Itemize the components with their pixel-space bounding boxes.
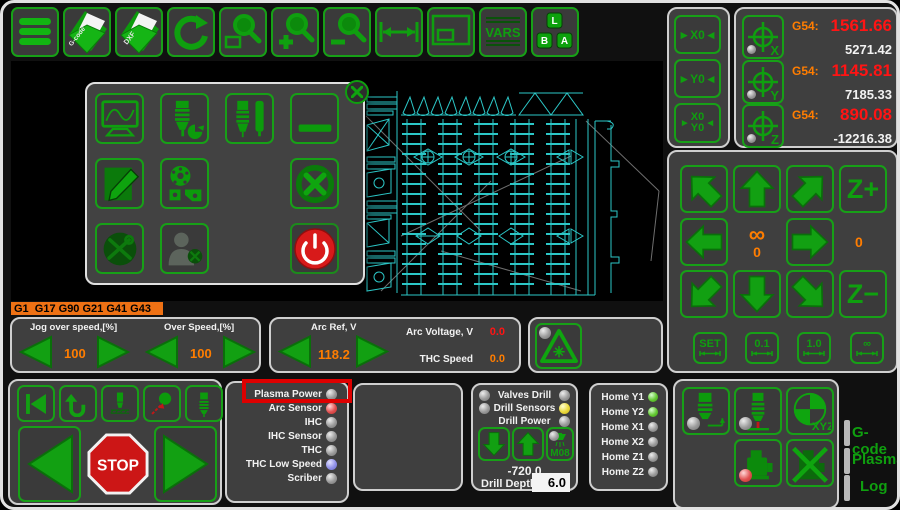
home-label: Home Z1 bbox=[602, 452, 644, 463]
tool-diagnostics-button[interactable] bbox=[160, 93, 209, 144]
x-machine-value: 5271.42 bbox=[845, 42, 892, 57]
axis-x-led bbox=[747, 45, 756, 54]
monitor-graph-icon bbox=[100, 98, 140, 140]
z-plus-label: Z+ bbox=[847, 174, 879, 205]
close-icon bbox=[351, 86, 363, 98]
thc-led bbox=[326, 445, 337, 456]
home-x1-led bbox=[648, 422, 658, 432]
arrow-right-icon bbox=[790, 222, 830, 262]
jog-right-button[interactable] bbox=[786, 218, 834, 266]
y-program-value: 1145.81 bbox=[831, 61, 892, 81]
goto-xyz-zero-button[interactable]: XYZ bbox=[786, 387, 834, 435]
zoom-in-button[interactable] bbox=[271, 7, 319, 57]
torch-fire-button[interactable] bbox=[734, 387, 782, 435]
tools-icon bbox=[100, 228, 140, 270]
wcs-label: G54: bbox=[792, 108, 819, 122]
thc-speed-label: THC Speed bbox=[420, 354, 473, 365]
step-measure-icon bbox=[751, 350, 773, 357]
arrow-left-icon bbox=[684, 222, 724, 262]
empty-panel bbox=[353, 383, 463, 491]
wcs-label: G54: bbox=[792, 64, 819, 78]
indicator-label: Scriber bbox=[288, 473, 322, 484]
run-backward-button[interactable] bbox=[18, 426, 81, 502]
home-z2-row: Home Z2 bbox=[597, 466, 658, 478]
tab-log[interactable]: Log bbox=[860, 478, 888, 495]
main-menu-dialog bbox=[85, 82, 365, 285]
stop-sign-icon: STOP bbox=[87, 433, 149, 495]
indicator-row-scriber: Scriber bbox=[235, 472, 337, 485]
jog-step-01-button[interactable]: 0.1 bbox=[745, 332, 779, 364]
parts-library-button[interactable] bbox=[160, 158, 209, 209]
arrow-down-icon bbox=[737, 274, 777, 314]
zoom-out-button[interactable] bbox=[323, 7, 371, 57]
jog-up-left-button[interactable] bbox=[680, 165, 728, 213]
axis-y-letter: Y bbox=[770, 88, 779, 103]
valves-drill-row: Valves Drill bbox=[479, 389, 570, 402]
spindle-motor-off-button[interactable] bbox=[786, 439, 834, 487]
laser-pointer-button[interactable] bbox=[535, 323, 582, 369]
coolant-m08-button[interactable]: M08 bbox=[546, 427, 574, 461]
axis-z-button[interactable]: Z bbox=[742, 104, 784, 148]
jog-down-right-button[interactable] bbox=[786, 270, 834, 318]
dialog-close-button[interactable] bbox=[345, 80, 369, 104]
indicator-label: IHC Sensor bbox=[268, 431, 322, 442]
laser-panel bbox=[528, 317, 663, 373]
thc-reference-led bbox=[687, 417, 700, 430]
keyboard-icon: L B A bbox=[534, 11, 576, 53]
cancel-x-icon bbox=[294, 163, 336, 205]
jog-z-plus-button[interactable]: Z+ bbox=[839, 165, 887, 213]
open-gcode-button[interactable]: G-code bbox=[63, 7, 111, 57]
vars-label: VARS bbox=[485, 25, 520, 40]
zoom-out-icon bbox=[327, 12, 367, 52]
home-label: Home Y2 bbox=[601, 407, 644, 418]
gcode-state-text: G1 G17 G90 G21 G41 G43 bbox=[14, 303, 151, 315]
jog-left-button[interactable] bbox=[680, 218, 728, 266]
jog-up-button[interactable] bbox=[733, 165, 781, 213]
jog-step-10-button[interactable]: 1.0 bbox=[797, 332, 831, 364]
torch-setup-button[interactable] bbox=[225, 93, 274, 144]
over-speed-label: Over Speed,[%] bbox=[164, 322, 234, 333]
zero-xy-left-arrow: ► bbox=[680, 118, 690, 129]
home-label: Home Z2 bbox=[602, 467, 644, 478]
home-x1-row: Home X1 bbox=[597, 421, 658, 433]
goto-position-button[interactable] bbox=[143, 385, 181, 422]
skip-start-icon bbox=[22, 391, 50, 417]
thc-low-speed-led bbox=[326, 459, 337, 470]
wcs-label: G54: bbox=[792, 19, 819, 33]
torch-icon bbox=[190, 391, 218, 417]
step-measure-icon bbox=[699, 350, 721, 357]
speed-panel: Jog over speed,[%] 100 Over Speed,[%] 10… bbox=[10, 317, 261, 373]
probe-icon bbox=[106, 391, 134, 417]
ihc-sensor-led bbox=[326, 431, 337, 442]
play-forward-icon bbox=[160, 433, 212, 495]
open-dxf-button[interactable]: DXF bbox=[115, 7, 163, 57]
jog-speed-value: 100 bbox=[64, 346, 86, 361]
indicator-label: Arc Sensor bbox=[269, 403, 322, 414]
tab-log-scrollbar bbox=[844, 475, 850, 501]
vars-button[interactable]: VARS bbox=[479, 7, 527, 57]
fit-window-icon bbox=[431, 14, 471, 50]
zero-xy-button[interactable]: ► X0Y0 ◄ bbox=[674, 103, 721, 143]
arc-panel: Arc Ref, V 118.2 Arc Voltage, V 0.0 THC … bbox=[269, 317, 521, 373]
jog-step-set-button[interactable]: SET bbox=[693, 332, 727, 364]
jog-zero-label: 0 bbox=[753, 244, 761, 260]
axis-row-y: Y G54: 1145.81 7185.33 bbox=[742, 60, 894, 104]
drill-sensors-row: Drill Sensors bbox=[479, 402, 570, 415]
home-label: Home Y1 bbox=[601, 392, 644, 403]
service-settings-button[interactable] bbox=[95, 223, 144, 274]
jog-z-value: 0 bbox=[855, 234, 863, 250]
indicator-row-ihc-sensor: IHC Sensor bbox=[235, 430, 337, 443]
arc-ref-value: 118.2 bbox=[318, 347, 350, 362]
step-10-label: 1.0 bbox=[806, 339, 821, 349]
home-label: Home X1 bbox=[601, 422, 644, 433]
arc-voltage-value: 0.0 bbox=[490, 326, 505, 338]
drill-panel: Valves Drill Drill Sensors Drill Power M… bbox=[471, 383, 578, 491]
goto-position-icon bbox=[148, 391, 176, 417]
home-y2-row: Home Y2 bbox=[597, 406, 658, 418]
rewind-start-button[interactable] bbox=[17, 385, 55, 422]
drill-power-led bbox=[559, 416, 570, 427]
indicator-label: THC bbox=[301, 445, 322, 456]
step-set-label: SET bbox=[699, 339, 720, 349]
z-machine-value: -12216.38 bbox=[833, 131, 892, 146]
edit-program-button[interactable] bbox=[95, 158, 144, 209]
stop-button[interactable]: STOP bbox=[86, 426, 149, 502]
cancel-button[interactable] bbox=[290, 158, 339, 209]
zero-y-button[interactable]: ►Y0◄ bbox=[674, 59, 721, 98]
tab-plasma-scrollbar bbox=[844, 448, 850, 474]
svg-text:XYZ: XYZ bbox=[812, 421, 831, 432]
valves-drill-right-led bbox=[559, 390, 570, 401]
playback-panel: STOP bbox=[8, 379, 222, 505]
indicator-row-thc-low-speed: THC Low Speed bbox=[235, 458, 337, 471]
xyz-quadrant-icon: XYZ bbox=[789, 390, 831, 432]
step-measure-icon bbox=[856, 350, 878, 357]
home-label: Home X2 bbox=[601, 437, 644, 448]
arrow-up-right-icon bbox=[782, 161, 839, 218]
jog-infinity-label: ∞ bbox=[749, 224, 765, 244]
over-speed-minus-button[interactable] bbox=[144, 335, 180, 369]
tab-plasma[interactable]: Plasma bbox=[852, 451, 900, 468]
arrow-down-left-icon bbox=[676, 266, 733, 323]
laser-led bbox=[539, 327, 551, 339]
vars-smalltext-decor bbox=[486, 40, 520, 48]
menu-button[interactable] bbox=[11, 7, 59, 57]
run-forward-button[interactable] bbox=[154, 426, 217, 502]
step-01-label: 0.1 bbox=[754, 339, 769, 349]
plasma-power-highlight-box bbox=[242, 379, 352, 403]
torch-test-button[interactable] bbox=[185, 385, 223, 422]
drill-sensors-right-led bbox=[559, 403, 570, 414]
step-measure-icon bbox=[803, 350, 825, 357]
open-gcode-file-icon: G-code bbox=[65, 9, 109, 55]
zero-panel: ►X0◄ ►Y0◄ ► X0Y0 ◄ bbox=[667, 7, 730, 148]
indicator-row-thc: THC bbox=[235, 444, 337, 457]
drill-up-button[interactable] bbox=[512, 427, 544, 461]
arc-ref-plus-button[interactable] bbox=[354, 333, 390, 370]
z-program-value: 890.08 bbox=[840, 105, 892, 125]
arrow-up-icon bbox=[515, 430, 541, 458]
axis-x-letter: X bbox=[770, 43, 779, 58]
arc-ref-minus-button[interactable] bbox=[277, 333, 313, 370]
material-plate-button[interactable] bbox=[290, 93, 339, 144]
drill-down-button[interactable] bbox=[478, 427, 510, 461]
scriber-led bbox=[326, 473, 337, 484]
arrow-down-right-icon bbox=[782, 266, 839, 323]
zero-y-label: ►Y0◄ bbox=[678, 72, 716, 86]
jog-z-minus-button[interactable]: Z− bbox=[839, 270, 887, 318]
jog-down-left-button[interactable] bbox=[680, 270, 728, 318]
home-y2-led bbox=[648, 407, 658, 417]
motor-off-icon bbox=[790, 443, 830, 483]
home-y1-row: Home Y1 bbox=[597, 391, 658, 403]
arc-sensor-led bbox=[326, 403, 337, 414]
m08-led bbox=[549, 431, 559, 441]
y-machine-value: 7185.33 bbox=[845, 87, 892, 102]
torch-fire-led bbox=[739, 417, 752, 430]
hamburger-icon bbox=[17, 15, 53, 49]
spindle-pie-icon bbox=[165, 98, 205, 140]
axis-x-button[interactable]: X bbox=[742, 15, 784, 59]
axis-y-led bbox=[747, 90, 756, 99]
app-window: G-code DXF bbox=[0, 0, 900, 510]
home-panel: Home Y1 Home Y2 Home X1 Home X2 Home Z1 … bbox=[589, 383, 668, 491]
tab-gcode-scrollbar bbox=[844, 420, 850, 446]
step-back-button[interactable] bbox=[59, 385, 97, 422]
zoom-in-icon bbox=[275, 12, 315, 52]
keyboard-button[interactable]: L B A bbox=[531, 7, 579, 57]
svg-text:STOP: STOP bbox=[97, 457, 139, 474]
spindle-motor-led bbox=[739, 469, 752, 482]
home-x2-led bbox=[648, 437, 658, 447]
zero-x-label: ►X0◄ bbox=[678, 28, 716, 42]
open-dxf-file-icon: DXF bbox=[117, 9, 161, 55]
ihc-led bbox=[326, 417, 337, 428]
valves-drill-left-led bbox=[479, 390, 490, 401]
axis-z-led bbox=[747, 134, 756, 143]
undo-arrow-icon bbox=[64, 391, 92, 417]
fit-window-button[interactable] bbox=[427, 7, 475, 57]
operator-settings-button[interactable] bbox=[160, 223, 209, 274]
thc-speed-value: 0.0 bbox=[490, 353, 505, 365]
z-minus-label: Z− bbox=[847, 279, 879, 310]
jog-panel: Z+ ∞ 0 0 Z− SET 0.1 bbox=[667, 150, 898, 373]
jog-speed-plus-button[interactable] bbox=[95, 335, 131, 369]
drill-power-label: Drill Power bbox=[490, 416, 559, 427]
drill-depth-label: Drill Depth bbox=[481, 478, 537, 490]
gcode-state-bar: G1 G17 G90 G21 G41 G43 bbox=[11, 302, 163, 315]
coordinates-panel: X G54: 1561.66 5271.42 Y G54: 1145.81 71… bbox=[734, 7, 898, 148]
axis-row-x: X G54: 1561.66 5271.42 bbox=[742, 15, 894, 59]
m08-label: M08 bbox=[550, 448, 569, 459]
arrow-down-icon bbox=[481, 430, 507, 458]
zero-xy-right-arrow: ◄ bbox=[705, 118, 715, 129]
vars-smalltext-decor bbox=[486, 17, 520, 25]
x-program-value: 1561.66 bbox=[831, 16, 892, 36]
over-speed-plus-button[interactable] bbox=[221, 335, 257, 369]
jog-up-right-button[interactable] bbox=[786, 165, 834, 213]
arc-ref-label: Arc Ref, V bbox=[311, 322, 356, 333]
measure-width-button[interactable] bbox=[375, 7, 423, 57]
indicator-label: IHC bbox=[305, 417, 322, 428]
drill-depth-value: 6.0 bbox=[548, 475, 566, 490]
thc-reference-button[interactable] bbox=[682, 387, 730, 435]
indicator-row-ihc: IHC bbox=[235, 416, 337, 429]
drill-depth-input[interactable]: 6.0 bbox=[532, 473, 570, 492]
arrow-up-icon bbox=[737, 169, 777, 209]
zero-x-button[interactable]: ►X0◄ bbox=[674, 15, 721, 54]
zoom-fit-icon bbox=[223, 12, 263, 52]
axis-y-button[interactable]: Y bbox=[742, 60, 784, 104]
drill-sensors-left-led bbox=[479, 403, 490, 414]
two-torches-icon bbox=[230, 98, 270, 140]
home-z2-led bbox=[648, 467, 658, 477]
svg-text:A: A bbox=[561, 36, 568, 47]
indicator-row-arc-sensor: Arc Sensor bbox=[235, 402, 337, 415]
play-backward-icon bbox=[24, 433, 76, 495]
parts-icon bbox=[165, 163, 205, 205]
diagnostics-display-button[interactable] bbox=[95, 93, 144, 144]
plate-icon bbox=[295, 98, 335, 140]
measure-width-icon bbox=[379, 20, 419, 44]
drill-sensors-label: Drill Sensors bbox=[490, 403, 559, 414]
jog-center-cell: ∞ 0 bbox=[733, 218, 781, 266]
edit-pencil-icon bbox=[100, 163, 140, 205]
spindle-motor-button[interactable] bbox=[734, 439, 782, 487]
over-speed-value: 100 bbox=[190, 346, 212, 361]
step-infinity-label: ∞ bbox=[863, 339, 871, 349]
jog-down-button[interactable] bbox=[733, 270, 781, 318]
svg-text:B: B bbox=[541, 36, 548, 47]
shutdown-button[interactable] bbox=[290, 223, 339, 274]
home-z1-row: Home Z1 bbox=[597, 451, 658, 463]
indicator-label: THC Low Speed bbox=[246, 459, 322, 470]
valves-drill-label: Valves Drill bbox=[490, 390, 559, 401]
user-tools-icon bbox=[165, 228, 205, 270]
home-y1-led bbox=[648, 392, 658, 402]
axis-z-letter: Z bbox=[771, 132, 779, 147]
zoom-fit-button[interactable] bbox=[219, 7, 267, 57]
power-icon bbox=[293, 227, 337, 271]
jog-speed-minus-button[interactable] bbox=[18, 335, 54, 369]
jog-step-continuous-button[interactable]: ∞ bbox=[850, 332, 884, 364]
arc-voltage-label: Arc Voltage, V bbox=[406, 327, 473, 338]
home-x2-row: Home X2 bbox=[597, 436, 658, 448]
zero-xy-label: X0Y0 bbox=[691, 112, 704, 134]
probe-material-button[interactable] bbox=[101, 385, 139, 422]
svg-text:L: L bbox=[551, 16, 557, 27]
reload-icon bbox=[172, 13, 210, 51]
reload-button[interactable] bbox=[167, 7, 215, 57]
axis-row-z: Z G54: 890.08 -12216.38 bbox=[742, 104, 894, 148]
arrow-up-left-icon bbox=[676, 161, 733, 218]
home-z1-led bbox=[648, 452, 658, 462]
tool-actions-panel: XYZ bbox=[673, 379, 839, 509]
jog-speed-label: Jog over speed,[%] bbox=[30, 322, 117, 333]
